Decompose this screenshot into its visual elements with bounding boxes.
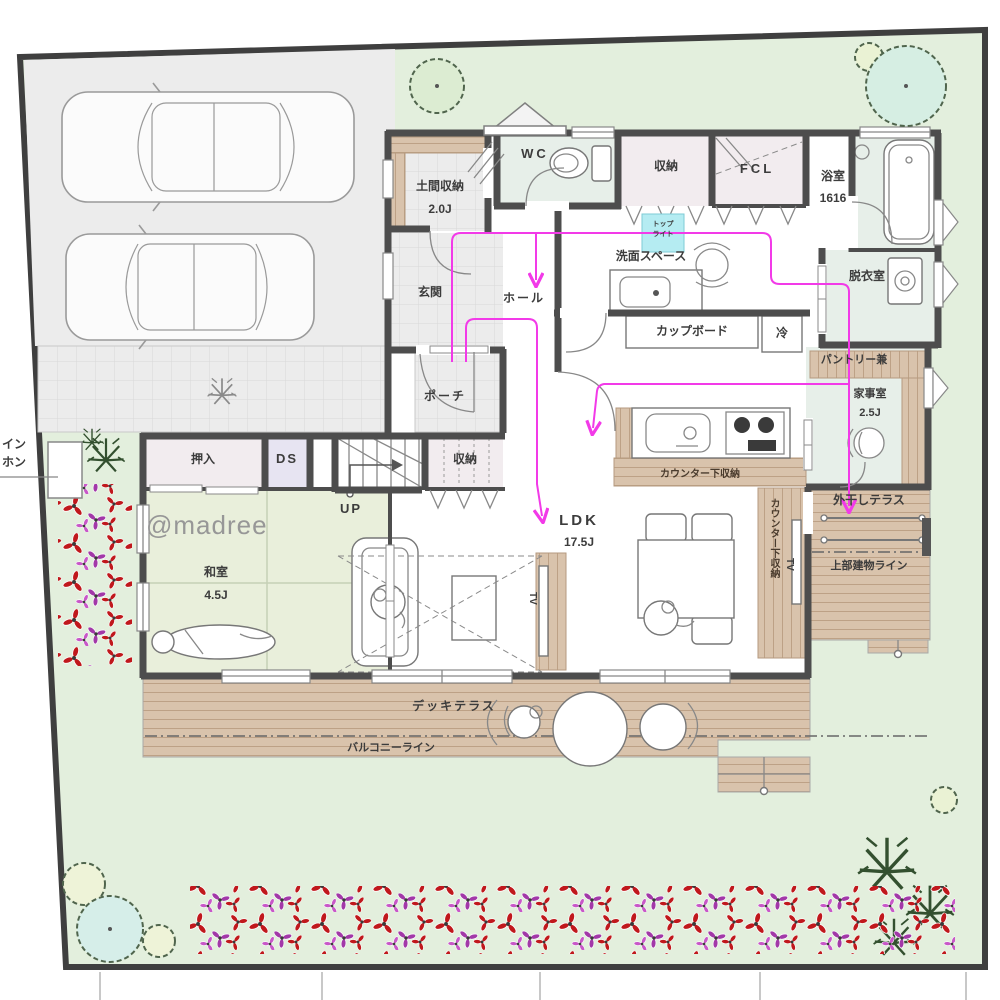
label-skylight-2: ライト [642,230,684,239]
label-datsui: 脱衣室 [832,270,902,284]
label-counter-storage-side: カウンター下収納 [768,498,778,578]
label-bath-size: 1616 [802,192,864,206]
label-fcl: FCL [710,162,804,177]
label-ds: DS [266,452,308,467]
label-counter-storage: カウンター下収納 [630,469,770,481]
car-2 [66,225,314,349]
label-senmen: 洗面スペース [596,250,706,264]
label-oshiire: 押入 [160,453,246,467]
label-pantry-2: 家事室 [838,388,902,401]
label-skylight-1: トップ [642,220,684,229]
terrace-post [922,518,931,556]
deck-terrace [143,679,810,757]
label-cut-text-2: ホン [2,456,32,470]
label-washitsu-size: 4.5J [176,589,256,603]
label-doma-size: 2.0J [392,203,488,217]
car-1 [62,83,354,211]
flower-band-bottom [190,886,955,954]
label-doma: 土間収納 [392,180,488,194]
label-porch: ポーチ [400,390,490,404]
label-up: UP [328,502,374,517]
label-drying-terrace: 外干しテラス [808,494,930,508]
label-pantry-1: パントリー兼 [806,354,902,367]
label-tv-living: TV [527,592,537,605]
label-washitsu: 和室 [176,566,256,580]
label-ldk-size: 17.5J [546,536,612,550]
label-hall: ホール [486,292,562,306]
label-tv-dining: TV [784,558,794,571]
dimension-ticks [100,972,966,1000]
label-closet-top: 収納 [620,160,712,174]
label-deck: デッキテラス [398,700,510,714]
label-closet-stairs: 収納 [426,453,504,467]
watermark: @madree [146,510,268,541]
floor-plan-page: 土間収納 2.0J WC 収納 FCL 浴室 1616 玄関 ホール 洗面スペー… [0,0,1000,1000]
label-cut-text-1: イン [2,438,32,452]
label-pantry-size: 2.5J [840,407,900,420]
label-cupboard: カップボード [636,325,748,339]
tv-living-unit [539,566,548,656]
label-genkan: 玄関 [390,286,470,300]
label-wc: WC [497,147,573,162]
kitchen-counter [632,408,790,458]
label-upper-building-line: 上部建物ライン [806,560,932,573]
label-ldk: LDK [546,512,612,529]
kitchen-side-strip [616,408,632,458]
flower-band-left [58,484,132,666]
label-balcony-line: バルコニーライン [328,742,454,755]
label-fridge: 冷 [766,327,798,341]
label-bath: 浴室 [802,170,864,184]
